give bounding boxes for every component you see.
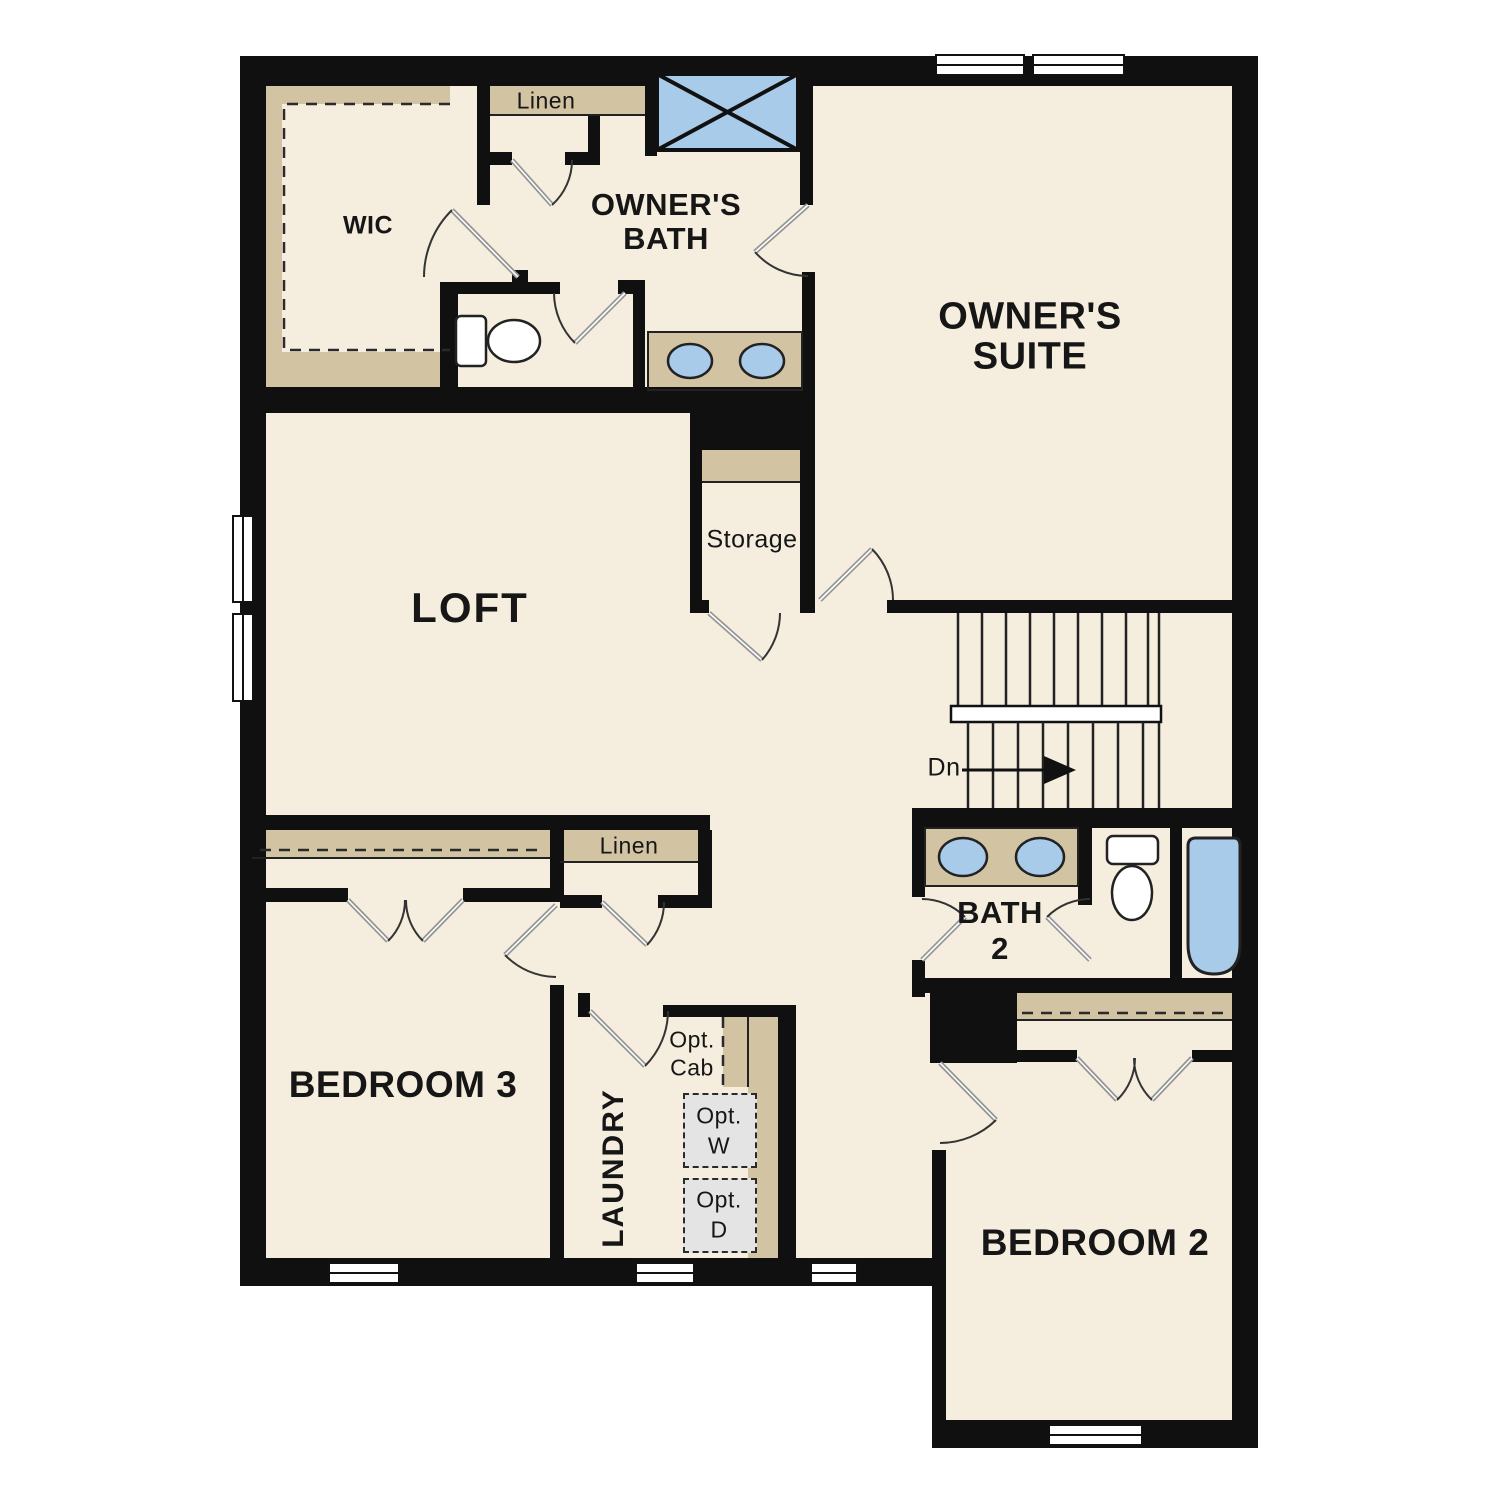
toilet-tank-icon — [1107, 836, 1158, 864]
closet-label-linen-hall: Linen — [600, 833, 659, 860]
closet-label-linen-top: Linen — [517, 88, 576, 115]
door-leaf-core — [512, 160, 552, 205]
option-label-cab-line1: Opt. — [669, 1027, 714, 1054]
floor-plan: WIC Linen OWNER'S BATH OWNER'S SUITE LOF… — [0, 0, 1500, 1500]
stairs-label-dn: Dn — [928, 754, 961, 783]
plan-vector-overlay — [0, 0, 1500, 1500]
door-leaf-core — [590, 1011, 645, 1066]
closet-label-storage: Storage — [706, 526, 797, 555]
room-label-bath2-line1: BATH — [957, 895, 1043, 931]
door-arc — [552, 160, 572, 205]
door-arc — [505, 955, 556, 977]
toilet-bowl-icon — [488, 320, 540, 362]
room-label-wic: WIC — [343, 212, 393, 241]
door-leaf-core — [1047, 917, 1090, 960]
room-label-owners-suite-line2: SUITE — [973, 336, 1087, 379]
door-leaf-core — [755, 205, 808, 252]
door-leaf-core — [602, 902, 647, 945]
door-arc — [940, 1120, 996, 1143]
stair-railing — [951, 706, 1161, 722]
sink-icon — [939, 838, 987, 876]
sink-icon — [1016, 838, 1064, 876]
door-arc — [647, 902, 664, 945]
door-arc — [554, 293, 575, 343]
door-arc — [645, 1011, 668, 1066]
door-leaf-core — [575, 293, 625, 343]
sink-icon — [668, 344, 712, 378]
toilet-bowl-icon — [1112, 866, 1152, 920]
door-arc — [388, 900, 405, 941]
room-label-loft: LOFT — [411, 584, 529, 632]
sink-icon — [740, 344, 784, 378]
door-leaf-core — [940, 1063, 996, 1120]
door-arc — [406, 900, 423, 941]
option-label-dryer-line1: Opt. — [696, 1187, 741, 1214]
option-label-dryer-line2: D — [710, 1217, 727, 1244]
door-arc — [1117, 1058, 1135, 1100]
door-leaf-core — [709, 613, 762, 660]
room-label-laundry: LAUNDRY — [597, 1088, 631, 1248]
room-label-owners-bath-line1: OWNER'S — [591, 187, 741, 223]
room-label-bath2-line2: 2 — [991, 931, 1009, 967]
room-label-owners-suite-line1: OWNER'S — [938, 296, 1122, 339]
option-label-washer-line1: Opt. — [696, 1103, 741, 1130]
option-label-washer-line2: W — [708, 1133, 730, 1160]
closet-dashed-lines — [260, 104, 1228, 1087]
shelf-outlines — [252, 115, 1232, 1087]
door-arc — [755, 252, 808, 276]
fixtures — [456, 74, 1240, 974]
door-arc — [872, 549, 893, 600]
room-label-bedroom2: BEDROOM 2 — [981, 1222, 1210, 1264]
door-leaf-core — [1077, 1058, 1117, 1100]
stair-direction-arrow-head — [1044, 756, 1076, 784]
stairs — [951, 613, 1161, 808]
room-label-bedroom3: BEDROOM 3 — [289, 1064, 518, 1106]
option-label-cab-line2: Cab — [670, 1055, 714, 1082]
room-label-owners-bath-line2: BATH — [623, 221, 709, 257]
door-leaf-core — [820, 549, 872, 600]
door-leaf-core — [1152, 1058, 1192, 1100]
toilet-tank-icon — [456, 316, 486, 366]
door-arc — [1047, 899, 1090, 917]
door-leaf-core — [505, 905, 556, 955]
door-arc — [424, 210, 452, 277]
door-arc — [1134, 1058, 1152, 1100]
door-leaf-core — [423, 900, 463, 941]
bathtub-icon — [1188, 838, 1240, 974]
door-leaf-core — [348, 900, 388, 941]
door-leaf-core — [452, 210, 518, 277]
door-arc — [762, 613, 780, 660]
